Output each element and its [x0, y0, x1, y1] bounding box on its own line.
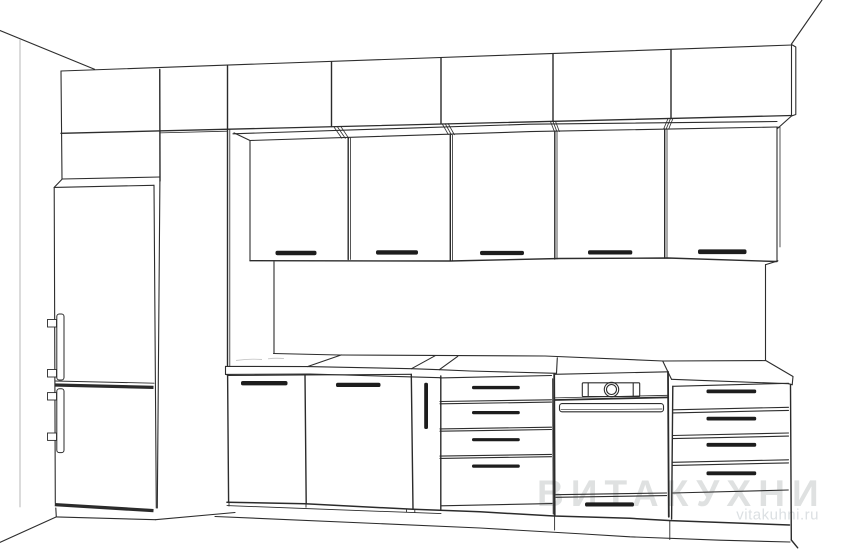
svg-text:vitakuhni.ru: vitakuhni.ru: [736, 507, 819, 524]
